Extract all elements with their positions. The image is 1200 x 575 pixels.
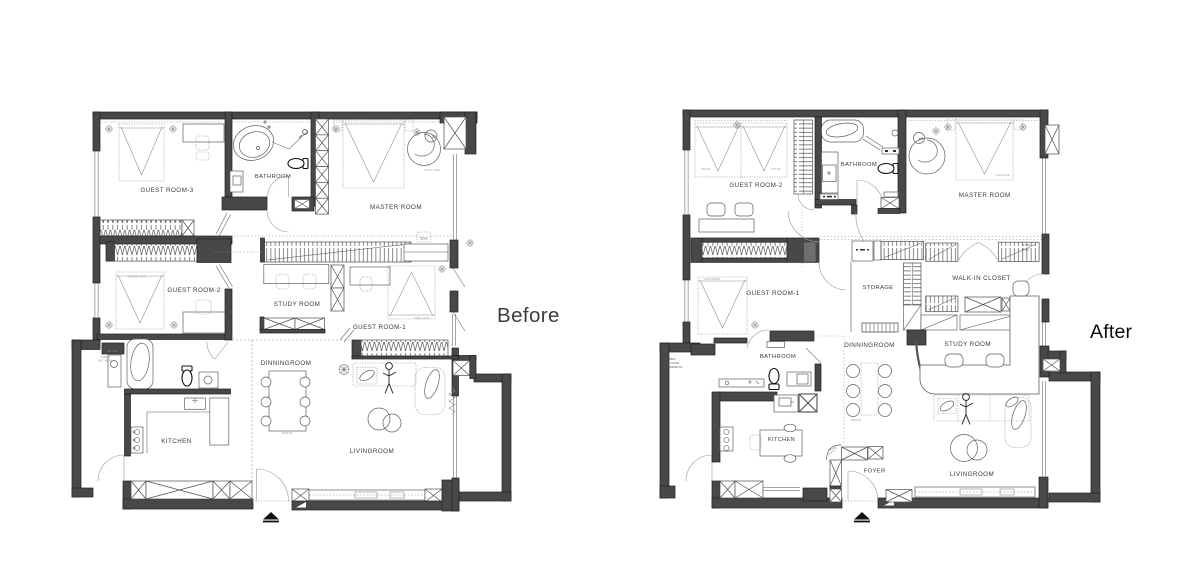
svg-text:GUEST ROOM-2: GUEST ROOM-2 [167, 287, 220, 294]
svg-text:GUEST ROOM-2: GUEST ROOM-2 [729, 182, 782, 189]
svg-text:BATHROOM: BATHROOM [841, 162, 877, 168]
svg-text:BATHROOM: BATHROOM [760, 354, 796, 360]
svg-text:02: 02 [432, 135, 436, 139]
svg-text:MASTER ROOM: MASTER ROOM [959, 192, 1011, 199]
svg-text:B=2C: B=2C [1022, 248, 1030, 252]
svg-text:STUDY ROOM: STUDY ROOM [274, 301, 321, 308]
svg-text:After: After [1090, 321, 1132, 343]
svg-text:STR120: STR120 [771, 168, 781, 171]
svg-text:ALL-NEW: ALL-NEW [664, 357, 676, 361]
svg-text:KITCHEN: KITCHEN [768, 437, 795, 443]
svg-text:W.C. BATH: W.C. BATH [98, 360, 112, 363]
svg-text:STORAGE: STORAGE [862, 285, 893, 291]
svg-text:KING SIZE: KING SIZE [424, 168, 440, 172]
svg-text:MP218: MP218 [851, 418, 861, 422]
svg-text:STUDY ROOM: STUDY ROOM [944, 341, 991, 348]
svg-text:KITCHEN: KITCHEN [161, 438, 191, 445]
svg-text:FOYER: FOYER [864, 469, 886, 475]
svg-text:60: 60 [919, 137, 923, 141]
svg-text:50ML 12X58: 50ML 12X58 [414, 317, 430, 320]
svg-text:BATHROOM: BATHROOM [255, 174, 291, 180]
svg-text:WALK-IN CLOSET: WALK-IN CLOSET [952, 275, 1011, 282]
svg-text:DINNINGROOM: DINNINGROOM [844, 342, 895, 349]
svg-text:WATERPROOF: WATERPROOF [664, 365, 683, 369]
svg-text:5602: 5602 [420, 237, 428, 241]
svg-text:GUEST ROOM-3: GUEST ROOM-3 [140, 187, 193, 194]
svg-text:KING SIZE: KING SIZE [996, 174, 1009, 177]
svg-text:LIVINGROOM: LIVINGROOM [350, 448, 394, 455]
svg-text:DINNINGROOM: DINNINGROOM [261, 360, 312, 367]
svg-text:LIVINGROOM: LIVINGROOM [950, 471, 994, 478]
svg-text:STR120: STR120 [701, 168, 711, 171]
svg-text:D=2D: D=2D [1022, 243, 1031, 247]
svg-text:GUEST ROOM-1: GUEST ROOM-1 [353, 324, 406, 331]
svg-text:TILE FLOOR: TILE FLOOR [664, 361, 679, 365]
svg-text:SINGLE BED: SINGLE BED [704, 278, 720, 281]
svg-text:SK-718: SK-718 [107, 349, 117, 353]
svg-text:MASTER ROOM: MASTER ROOM [370, 204, 422, 211]
svg-text:GUEST ROOM-1: GUEST ROOM-1 [746, 290, 799, 297]
svg-text:SINGLE TWIN: SINGLE TWIN [128, 276, 145, 279]
svg-text:Before: Before [497, 304, 560, 327]
svg-text:MP218: MP218 [282, 431, 292, 435]
